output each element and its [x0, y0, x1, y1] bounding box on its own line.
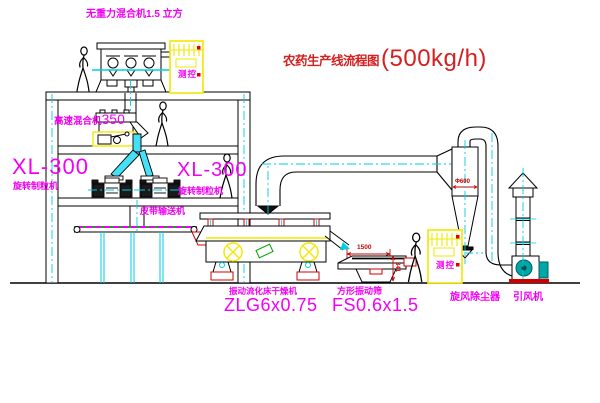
- title-chinese: 农药生产线流程图: [283, 50, 379, 69]
- person-roof: [77, 47, 89, 91]
- label-granulator-left: 旋转制粒机: [13, 182, 58, 191]
- label-high-speed-mixer: 高速混合机350: [54, 112, 125, 127]
- label-high-speed-mixer-name: 高速混合机: [54, 116, 102, 127]
- gravity-free-mixer: [92, 43, 173, 92]
- dim-sieve-height: 341: [394, 262, 400, 272]
- granulator-right: [136, 178, 184, 198]
- exhaust-duct: [256, 149, 452, 214]
- cabinet2-text: 测控: [436, 261, 455, 270]
- label-fan: 引风机: [513, 293, 543, 303]
- granulator-left: [88, 178, 136, 198]
- control-cabinet-1: [170, 41, 203, 93]
- control-cabinet-2: [428, 230, 462, 283]
- fluid-bed-dryer: [196, 213, 330, 280]
- dim-sieve-width: 1500: [357, 245, 371, 252]
- title-capacity: (500kg/h): [381, 45, 487, 73]
- pesticide-line-flow-diagram: 无重力混合机1.5 立方 农药生产线流程图 (500kg/h) 高速混合机350…: [0, 0, 600, 403]
- diagram-title: 农药生产线流程图 (500kg/h): [283, 45, 487, 73]
- draft-fan: [509, 256, 549, 283]
- label-belt-conveyor: 皮带输送机: [140, 207, 185, 216]
- label-high-speed-mixer-size: 350: [102, 111, 125, 127]
- cabinet1-text: 测控: [178, 70, 197, 79]
- label-xl300-right: XL-300: [177, 160, 248, 180]
- label-granulator-right: 旋转制粒机: [178, 187, 223, 196]
- dim-cyclone-diameter: Φ600: [455, 179, 470, 185]
- label-cyclone: 旋风除尘器: [450, 293, 500, 303]
- label-xl300-left: XL-300: [12, 156, 89, 178]
- person-floor2: [156, 102, 168, 146]
- label-sieve-model: FS0.6x1.5: [332, 296, 419, 314]
- person-ground: [409, 233, 422, 281]
- belt-conveyor: [74, 227, 208, 284]
- label-gravity-free-mixer: 无重力混合机1.5 立方: [86, 10, 183, 20]
- label-dryer-model: ZLG6x0.75: [224, 296, 318, 314]
- vibrating-sieve: [338, 249, 416, 282]
- dryer-foot-right: [297, 262, 319, 280]
- dryer-foot-left: [211, 262, 233, 280]
